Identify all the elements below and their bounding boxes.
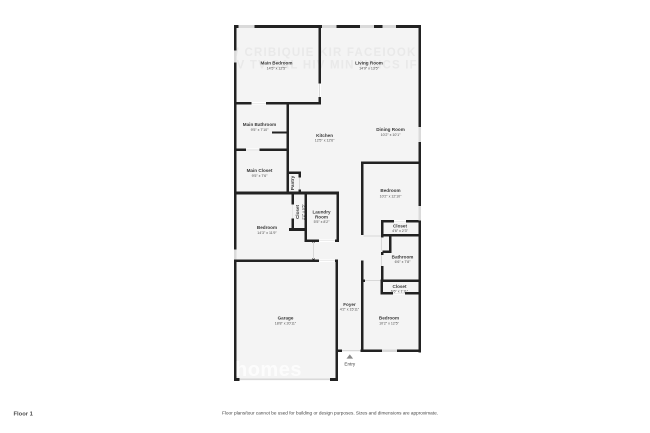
svg-text:14'5" x 12'5": 14'5" x 12'5" — [267, 66, 287, 70]
svg-text:Entry: Entry — [344, 361, 355, 366]
svg-text:18'8" x 20'11": 18'8" x 20'11" — [275, 322, 297, 326]
svg-text:4'6" x 2'3": 4'6" x 2'3" — [392, 229, 408, 233]
svg-text:Main Closet: Main Closet — [247, 168, 273, 173]
svg-text:4'2" x 15'11": 4'2" x 15'11" — [340, 308, 360, 312]
svg-text:Pantry: Pantry — [290, 175, 295, 190]
svg-text:Floor plans/tour cannot be use: Floor plans/tour cannot be used for buil… — [222, 410, 438, 415]
svg-text:9'5" x 7'6": 9'5" x 7'6" — [252, 174, 268, 178]
svg-text:Dining Room: Dining Room — [376, 127, 405, 132]
svg-text:10'2" x 12'5": 10'2" x 12'5" — [379, 322, 399, 326]
svg-text:Main Bedroom: Main Bedroom — [261, 60, 293, 65]
svg-text:Closet: Closet — [392, 284, 407, 289]
svg-text:6'6" x 7'8": 6'6" x 7'8" — [395, 260, 411, 264]
svg-text:Closet: Closet — [393, 223, 408, 228]
svg-text:2'2" x 6'5": 2'2" x 6'5" — [302, 203, 306, 219]
svg-text:Garage: Garage — [278, 316, 294, 321]
svg-text:Living Room: Living Room — [355, 61, 383, 66]
svg-text:Bedroom: Bedroom — [257, 225, 277, 230]
svg-text:Closet: Closet — [295, 205, 300, 220]
svg-text:Floor 1: Floor 1 — [14, 411, 34, 417]
svg-text:5'5" x 8'2": 5'5" x 8'2" — [314, 220, 330, 224]
svg-text:14'3" x 11'9": 14'3" x 11'9" — [257, 231, 277, 235]
svg-text:12'5" x 12'6": 12'5" x 12'6" — [315, 139, 335, 143]
svg-text:Room: Room — [315, 214, 328, 219]
svg-text:Kitchen: Kitchen — [316, 133, 333, 138]
svg-text:9'5" x 7'10": 9'5" x 7'10" — [251, 128, 269, 132]
svg-text:14'9" x 13'5": 14'9" x 13'5" — [359, 67, 379, 71]
svg-text:10'2" x 10'1": 10'2" x 10'1" — [381, 133, 401, 137]
svg-text:6'6" x 1'11": 6'6" x 1'11" — [391, 289, 409, 293]
svg-text:Bedroom: Bedroom — [380, 188, 400, 193]
svg-text:Main Bathroom: Main Bathroom — [243, 122, 276, 127]
svg-text:10'2" x 12'10": 10'2" x 12'10" — [380, 194, 402, 198]
svg-text:W CRIBIQUIE KIR FACEIOOK MAC V: W CRIBIQUIE KIR FACEIOOK MAC VHE IKWA HS… — [228, 47, 593, 59]
svg-text:Bathroom: Bathroom — [392, 255, 414, 260]
svg-text:homes: homes — [235, 359, 302, 381]
svg-text:Bedroom: Bedroom — [379, 315, 399, 320]
svg-text:Foyer: Foyer — [343, 302, 356, 307]
